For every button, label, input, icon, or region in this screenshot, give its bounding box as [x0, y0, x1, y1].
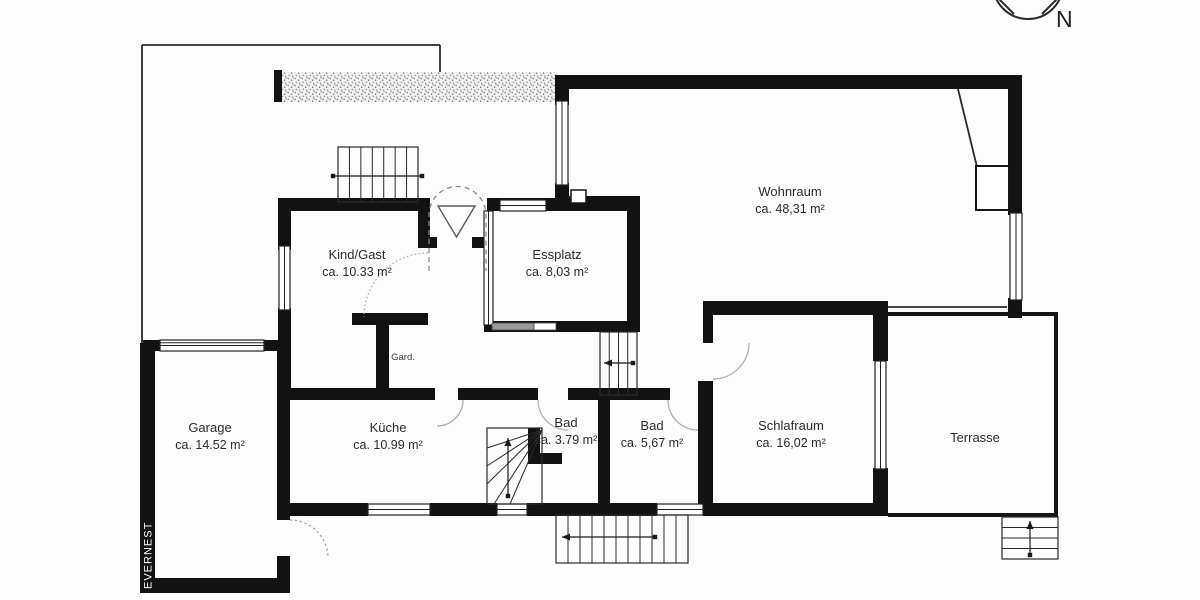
- entrance-marker-triangle: [438, 206, 475, 237]
- wall: [430, 503, 497, 516]
- wall: [277, 556, 290, 580]
- room-name-label: Garage: [188, 420, 231, 435]
- wall: [376, 313, 389, 398]
- stair-arrow-head: [604, 360, 612, 367]
- wall: [274, 70, 282, 102]
- door-swing-arc: [290, 520, 328, 558]
- wall: [278, 198, 430, 211]
- room-area-label: ca. 48,31 m²: [755, 202, 824, 216]
- white-box: [976, 166, 1009, 210]
- room-name-label: Terrasse: [950, 430, 1000, 445]
- wall: [140, 578, 290, 593]
- gravel-strip: [282, 72, 557, 102]
- stair-arrow-dot: [331, 174, 335, 178]
- room-area-label: ca. 8,03 m²: [526, 265, 589, 279]
- sliding-door: [534, 323, 556, 330]
- stair-arrow-head: [562, 534, 570, 541]
- wall: [528, 388, 538, 400]
- floor-plan: N Wohnraumca. 48,31 m²Kind/Gastca. 10.33…: [0, 0, 1200, 600]
- room-area-label: ca. 16,02 m²: [756, 436, 825, 450]
- white-box: [571, 190, 586, 203]
- wall: [290, 388, 435, 400]
- compass-north-label: N: [1056, 6, 1073, 32]
- terrace-outline: [888, 314, 1056, 515]
- wall: [698, 381, 713, 505]
- wall: [418, 237, 437, 248]
- wall: [458, 388, 528, 400]
- wall: [873, 301, 888, 361]
- room-name-label: Bad: [640, 418, 663, 433]
- wall: [278, 503, 368, 516]
- door-swing-arc: [668, 400, 698, 430]
- room-name-label: Küche: [370, 420, 407, 435]
- room-area-label: ca. 10.33 m²: [322, 265, 391, 279]
- room-name-label: Schlafraum: [758, 418, 824, 433]
- wall: [627, 198, 640, 332]
- thin-outline: [958, 89, 977, 167]
- wall: [568, 388, 600, 400]
- wall: [598, 388, 610, 505]
- door-swing-arc: [713, 343, 749, 379]
- room-area-label: ca. 10.99 m²: [353, 438, 422, 452]
- wall: [555, 75, 1022, 89]
- wall: [703, 503, 888, 516]
- plan-drawing: N Wohnraumca. 48,31 m²Kind/Gastca. 10.33…: [140, 0, 1073, 593]
- door-swing-arc: [437, 400, 463, 426]
- wall: [278, 198, 291, 250]
- room-name-label: Kind/Gast: [328, 247, 385, 262]
- stair-arrow-dot: [631, 361, 635, 365]
- stairs-outline: [338, 147, 418, 202]
- wall: [1008, 298, 1022, 318]
- wall: [1008, 75, 1022, 215]
- stair-arrow-head: [1027, 521, 1034, 529]
- wall: [528, 453, 562, 464]
- door-swing-arc: [364, 253, 428, 317]
- sliding-door: [492, 323, 534, 330]
- stair-arrow-dot: [653, 535, 657, 539]
- wall: [705, 301, 888, 315]
- room-area-label: ca. 14.52 m²: [175, 438, 244, 452]
- wall: [352, 313, 428, 325]
- floor-plan-page: N Wohnraumca. 48,31 m²Kind/Gastca. 10.33…: [0, 0, 1200, 600]
- stair-arrow-dot: [420, 174, 424, 178]
- brand-watermark: EVERNEST: [143, 522, 155, 589]
- room-name-label: Wohnraum: [758, 184, 821, 199]
- room-name-label: Essplatz: [532, 247, 581, 262]
- stairs-outline: [556, 515, 688, 563]
- stair-arrow-dot: [1028, 553, 1032, 557]
- wall: [527, 503, 657, 516]
- stair-arrow-dot: [506, 494, 510, 498]
- room-area-label: ca. 3.79 m²: [535, 433, 598, 447]
- wall: [277, 340, 290, 520]
- room-area-label: ca. 5,67 m²: [621, 436, 684, 450]
- room-label-small: Gard.: [391, 352, 415, 363]
- room-name-label: Bad: [554, 415, 577, 430]
